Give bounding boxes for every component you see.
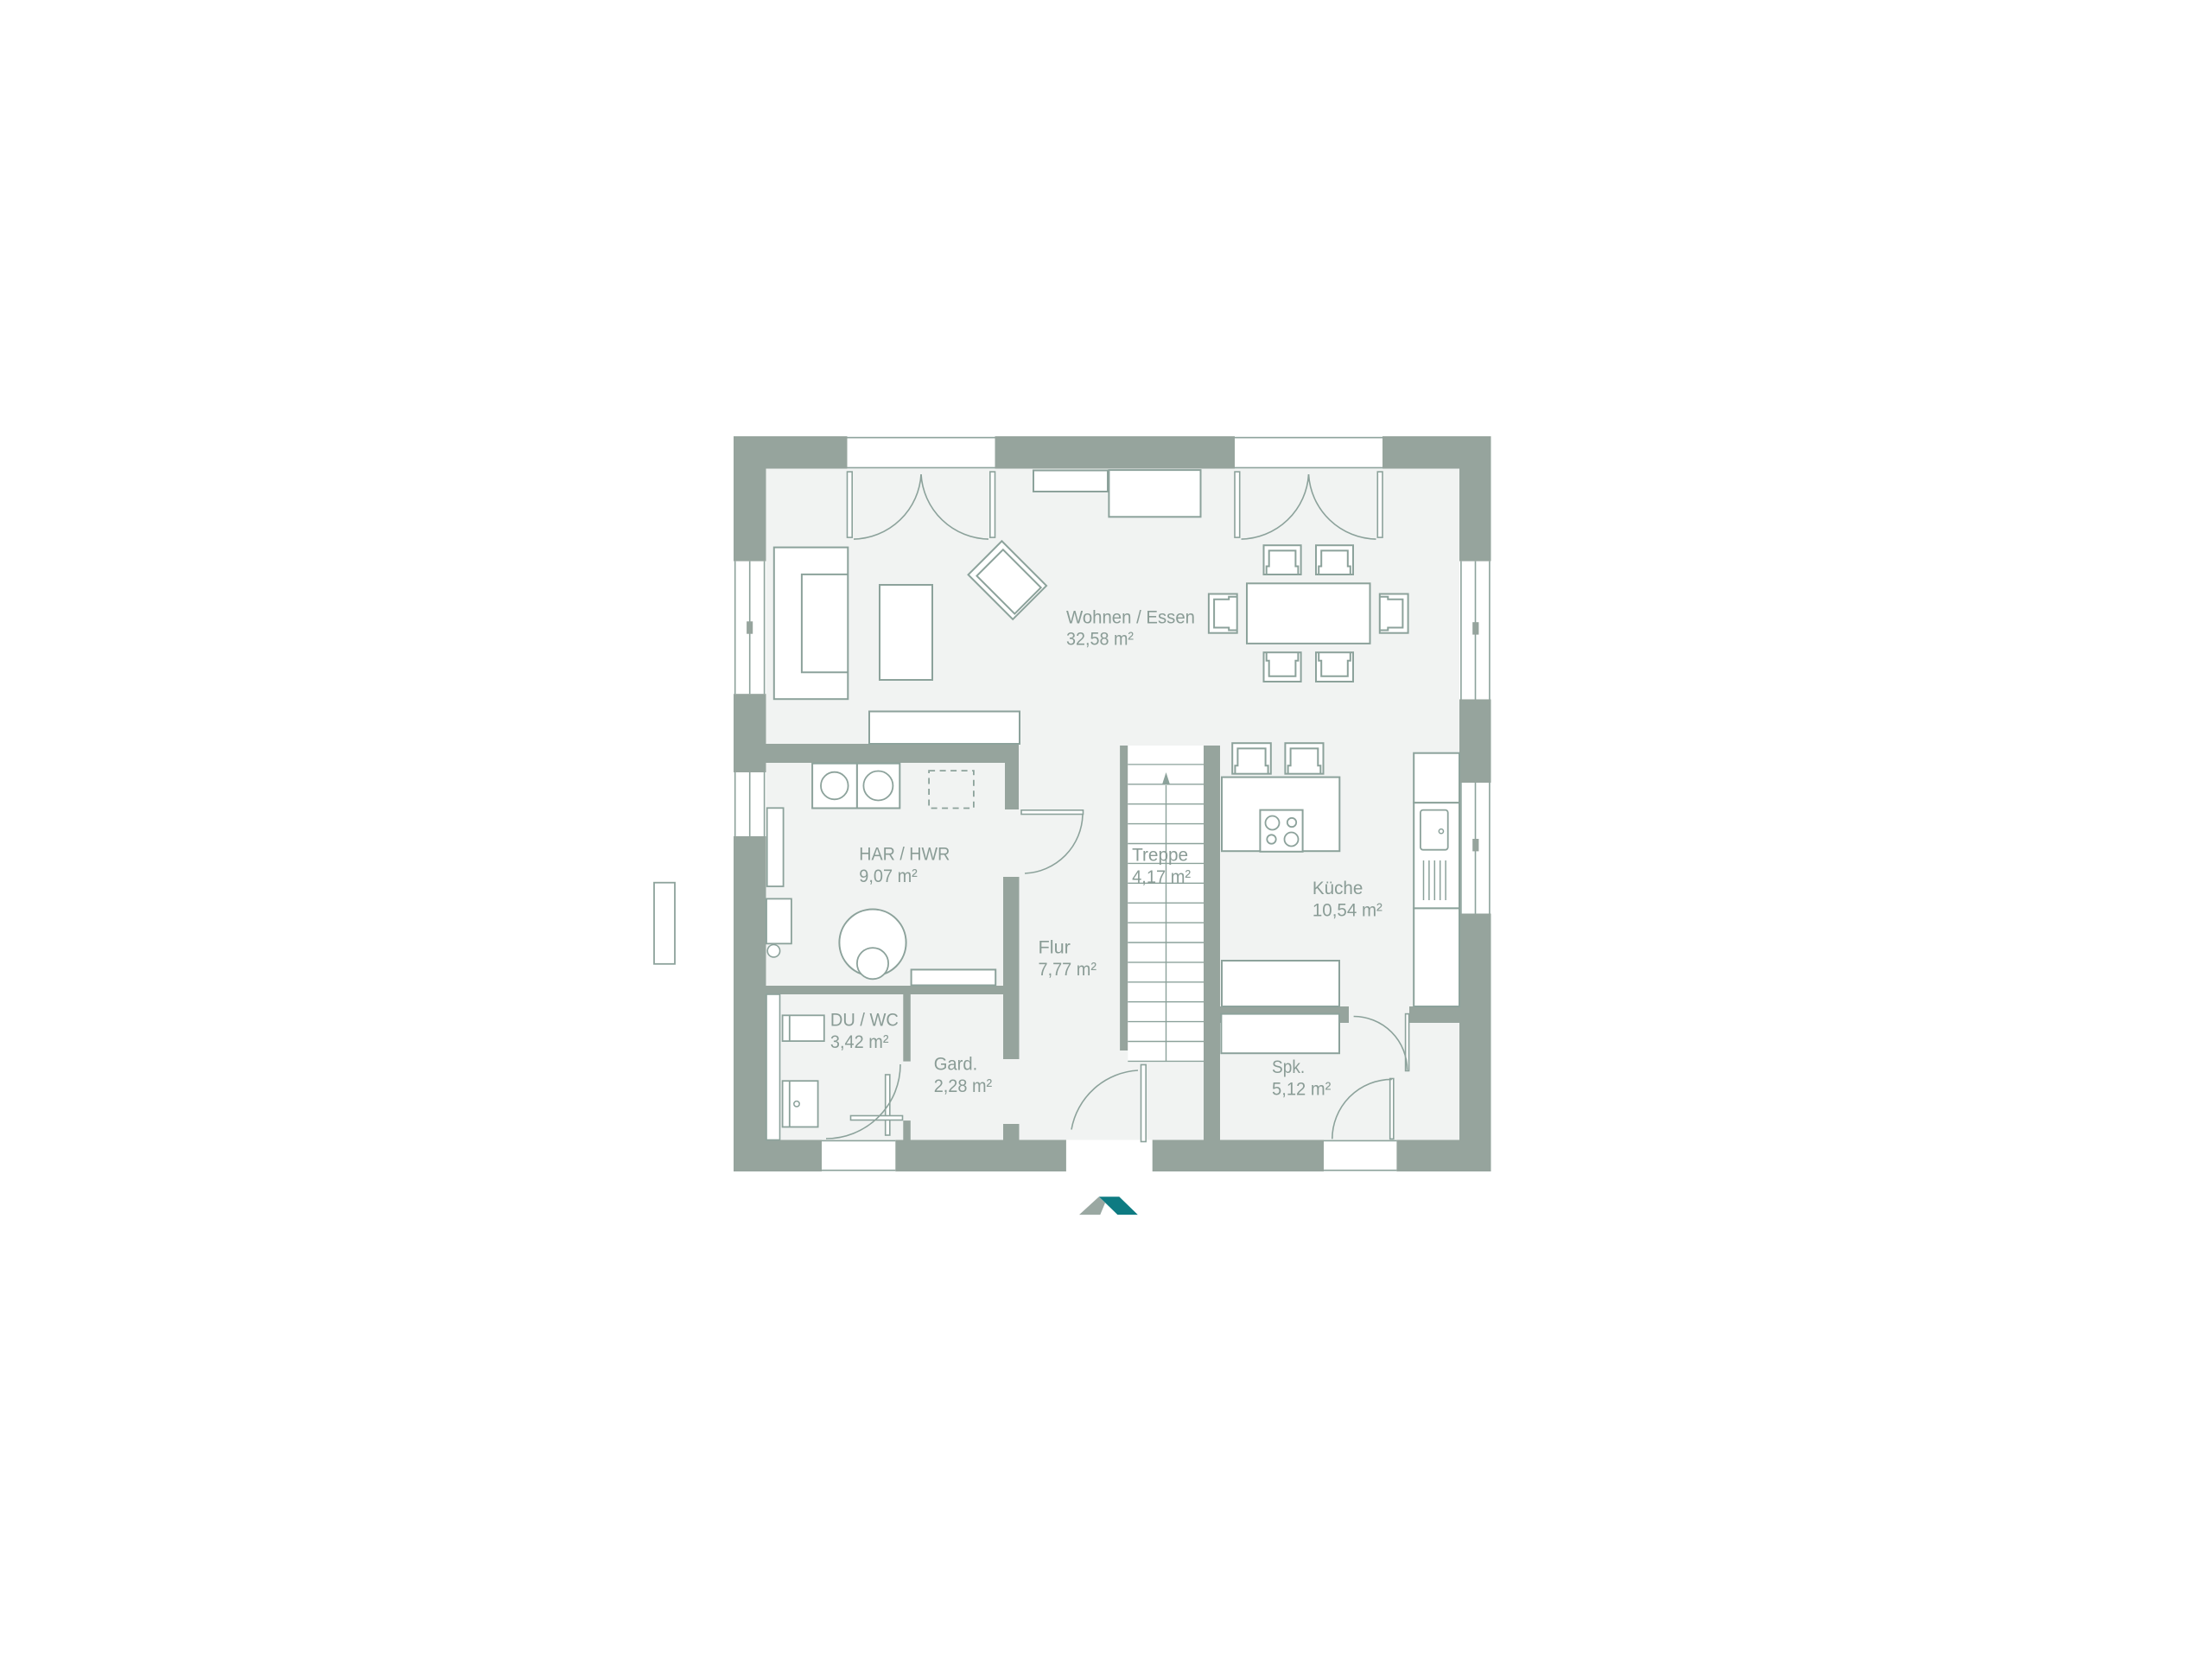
svg-text:2,28 m²: 2,28 m² — [934, 1076, 993, 1096]
svg-text:3,42 m²: 3,42 m² — [830, 1032, 889, 1052]
svg-text:Treppe: Treppe — [1132, 846, 1188, 866]
svg-text:32,58 m²: 32,58 m² — [1066, 630, 1134, 650]
svg-text:4,17 m²: 4,17 m² — [1132, 867, 1191, 887]
svg-text:DU / WC: DU / WC — [830, 1011, 899, 1031]
svg-text:7,77 m²: 7,77 m² — [1039, 960, 1097, 980]
svg-text:Küche: Küche — [1313, 879, 1363, 898]
svg-text:5,12 m²: 5,12 m² — [1272, 1079, 1331, 1099]
svg-text:Flur: Flur — [1039, 938, 1071, 958]
svg-text:10,54 m²: 10,54 m² — [1313, 900, 1382, 920]
svg-text:Spk.: Spk. — [1272, 1057, 1305, 1077]
svg-text:Gard.: Gard. — [934, 1055, 978, 1075]
svg-text:Wohnen / Essen: Wohnen / Essen — [1066, 607, 1195, 627]
svg-text:9,07 m²: 9,07 m² — [859, 866, 918, 886]
svg-text:HAR / HWR: HAR / HWR — [859, 845, 950, 865]
